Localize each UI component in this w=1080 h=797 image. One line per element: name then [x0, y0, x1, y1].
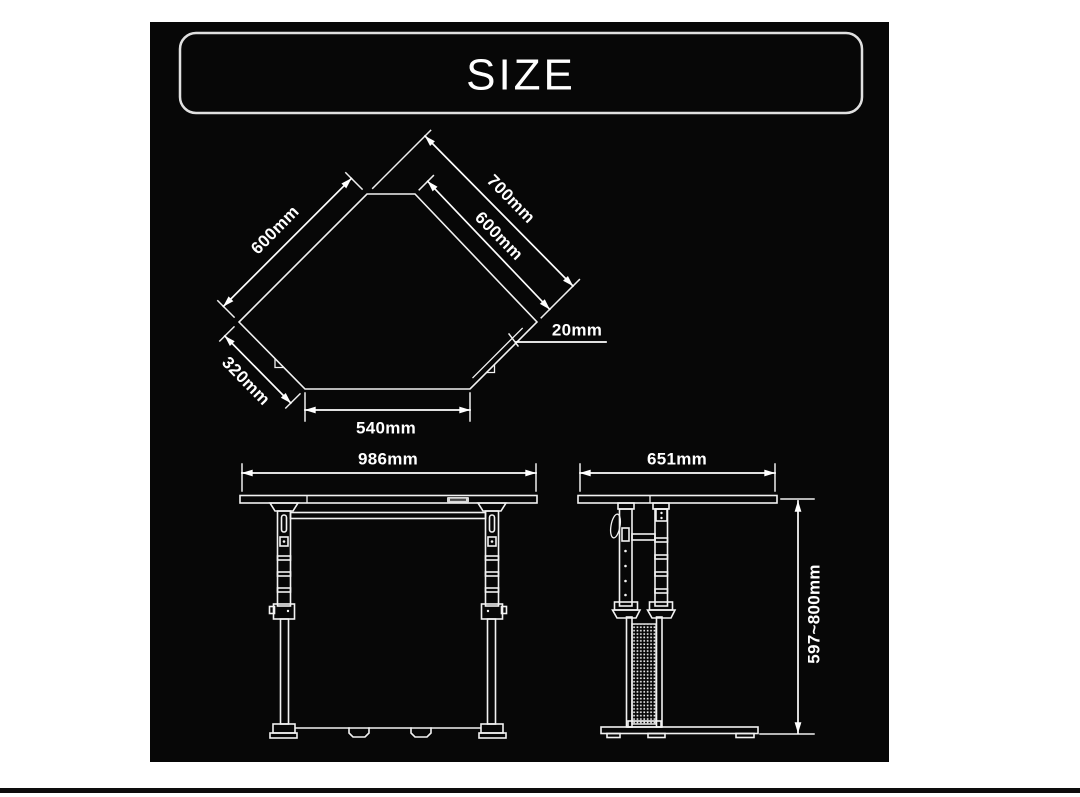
cable-mesh-panel: [632, 624, 656, 724]
brand-logo: [447, 497, 469, 503]
footer-rule: [0, 788, 1080, 793]
page-title: SIZE: [466, 51, 576, 100]
page: SIZE 600mm 700mm 600mm: [0, 0, 1080, 797]
dim-label-bottom-540: 540mm: [356, 419, 416, 438]
dim-label-edge-20: 20mm: [552, 321, 602, 340]
dim-label-depth-651: 651mm: [647, 450, 707, 469]
size-spec-diagram: SIZE 600mm 700mm 600mm: [0, 0, 1080, 797]
dim-label-height-range: 597~800mm: [805, 564, 824, 664]
dim-label-width-986: 986mm: [358, 450, 418, 469]
